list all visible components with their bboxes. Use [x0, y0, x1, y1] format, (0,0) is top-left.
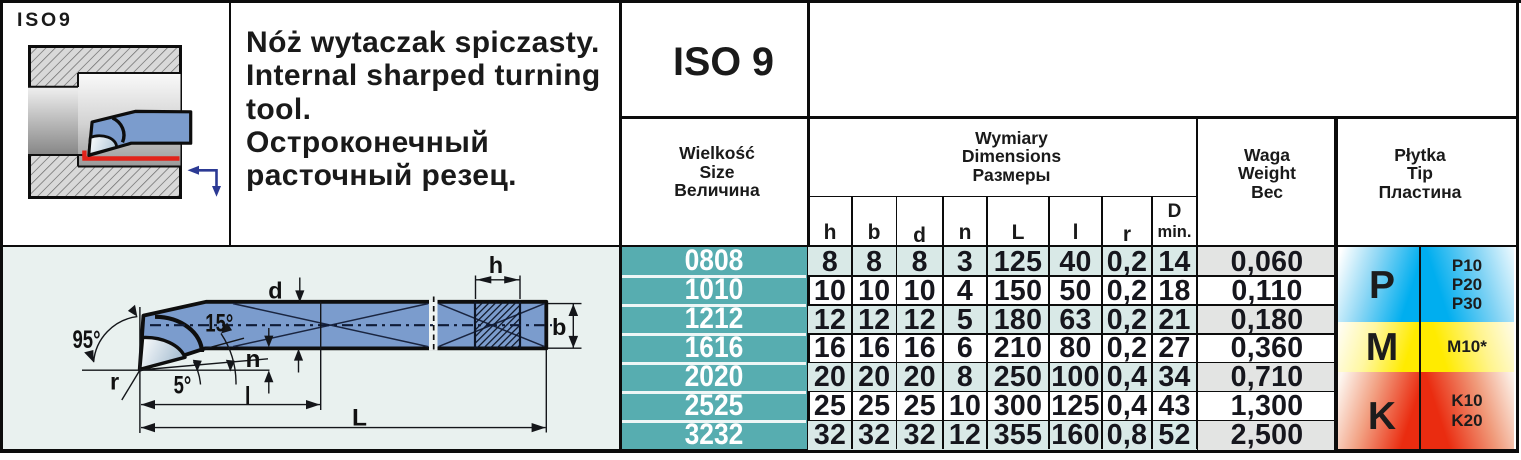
svg-text:r: r	[110, 369, 119, 395]
svg-text:n: n	[246, 346, 261, 373]
svg-text:L: L	[352, 404, 367, 431]
svg-text:5°: 5°	[174, 371, 192, 399]
svg-text:95°: 95°	[73, 325, 101, 353]
svg-text:d: d	[268, 278, 282, 304]
svg-text:l: l	[245, 381, 250, 409]
svg-text:15°: 15°	[205, 309, 233, 337]
svg-text:b: b	[552, 314, 566, 340]
svg-text:h: h	[489, 252, 503, 278]
